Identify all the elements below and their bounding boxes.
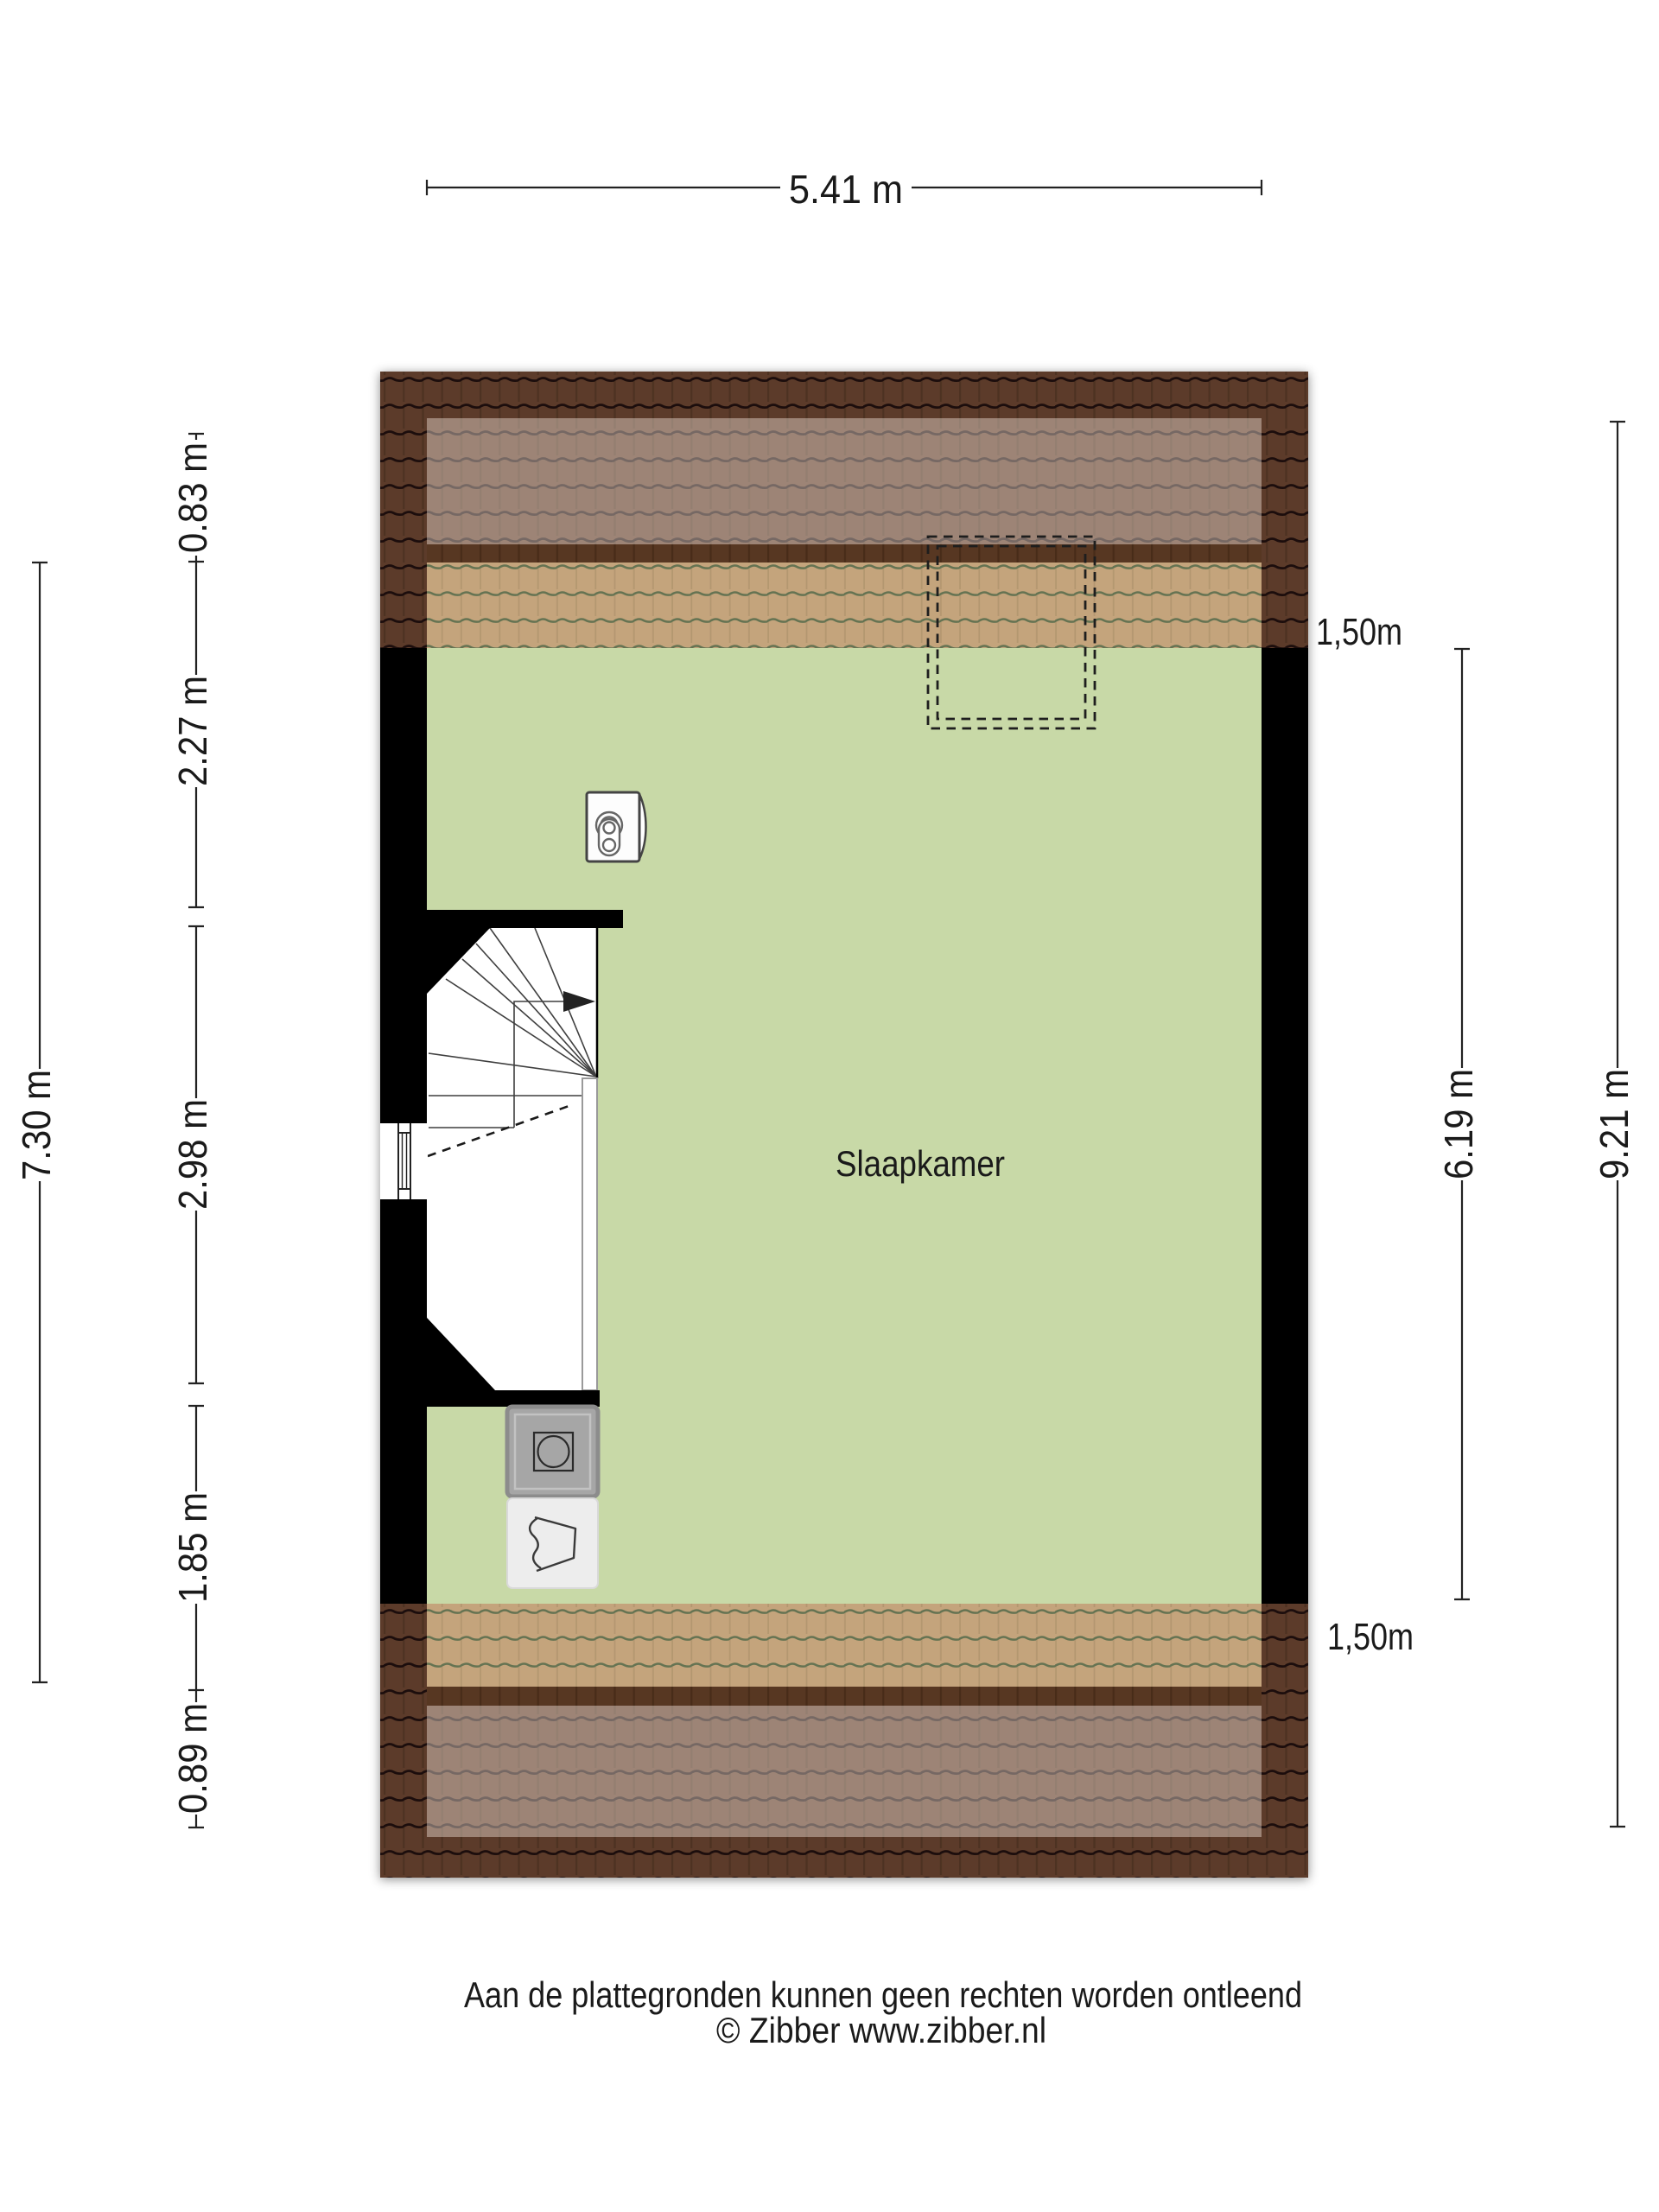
- svg-text:© Zibber www.zibber.nl: © Zibber www.zibber.nl: [716, 2010, 1046, 2050]
- svg-text:2.27 m: 2.27 m: [170, 676, 215, 786]
- svg-text:7.30 m: 7.30 m: [14, 1070, 59, 1180]
- svg-text:9.21 m: 9.21 m: [1592, 1069, 1637, 1179]
- svg-text:Slaapkamer: Slaapkamer: [836, 1143, 1005, 1184]
- svg-text:5.41 m: 5.41 m: [789, 167, 903, 212]
- svg-text:6.19 m: 6.19 m: [1436, 1069, 1481, 1179]
- svg-text:1.85 m: 1.85 m: [170, 1492, 215, 1603]
- svg-text:2.98 m: 2.98 m: [170, 1099, 215, 1210]
- svg-text:1,50m: 1,50m: [1316, 611, 1402, 653]
- svg-text:0.89 m: 0.89 m: [170, 1703, 215, 1814]
- svg-text:Aan de plattegronden kunnen ge: Aan de plattegronden kunnen geen rechten…: [464, 1974, 1302, 2015]
- svg-text:0.83 m: 0.83 m: [170, 442, 215, 553]
- svg-text:1,50m: 1,50m: [1327, 1616, 1414, 1658]
